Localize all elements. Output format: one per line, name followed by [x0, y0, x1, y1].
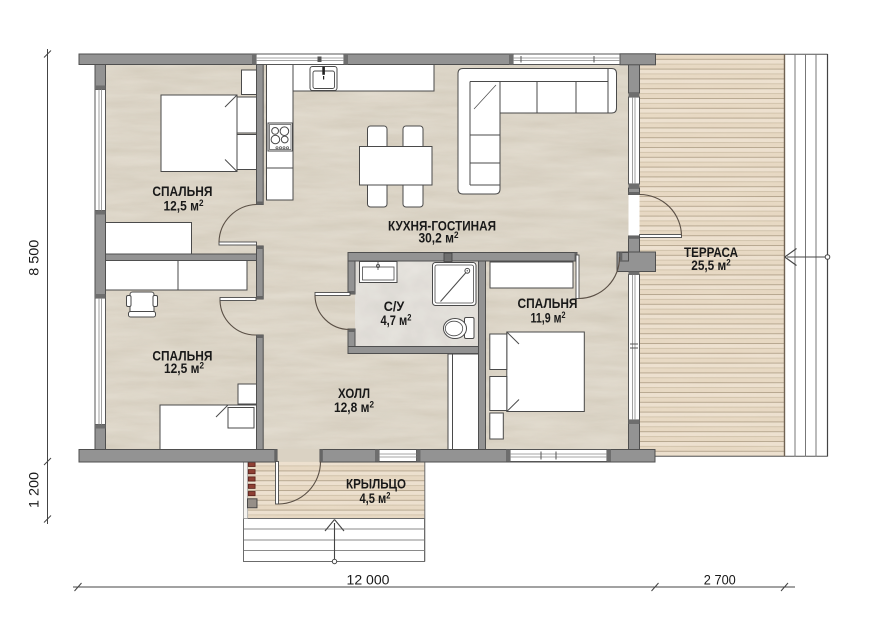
svg-text:12,5 м2: 12,5 м2	[164, 198, 204, 214]
svg-text:1 200: 1 200	[27, 472, 42, 508]
svg-text:4,7 м2: 4,7 м2	[381, 312, 412, 328]
svg-text:4,5 м2: 4,5 м2	[360, 490, 391, 506]
svg-text:8 500: 8 500	[27, 240, 42, 276]
svg-text:30,2 м2: 30,2 м2	[419, 229, 459, 245]
svg-text:2 700: 2 700	[704, 573, 736, 588]
svg-text:12,8 м2: 12,8 м2	[334, 399, 374, 415]
svg-text:12 000: 12 000	[347, 573, 390, 588]
svg-text:11,9 м2: 11,9 м2	[531, 310, 566, 326]
svg-text:25,5 м2: 25,5 м2	[691, 257, 731, 273]
svg-text:12,5 м2: 12,5 м2	[164, 360, 204, 376]
